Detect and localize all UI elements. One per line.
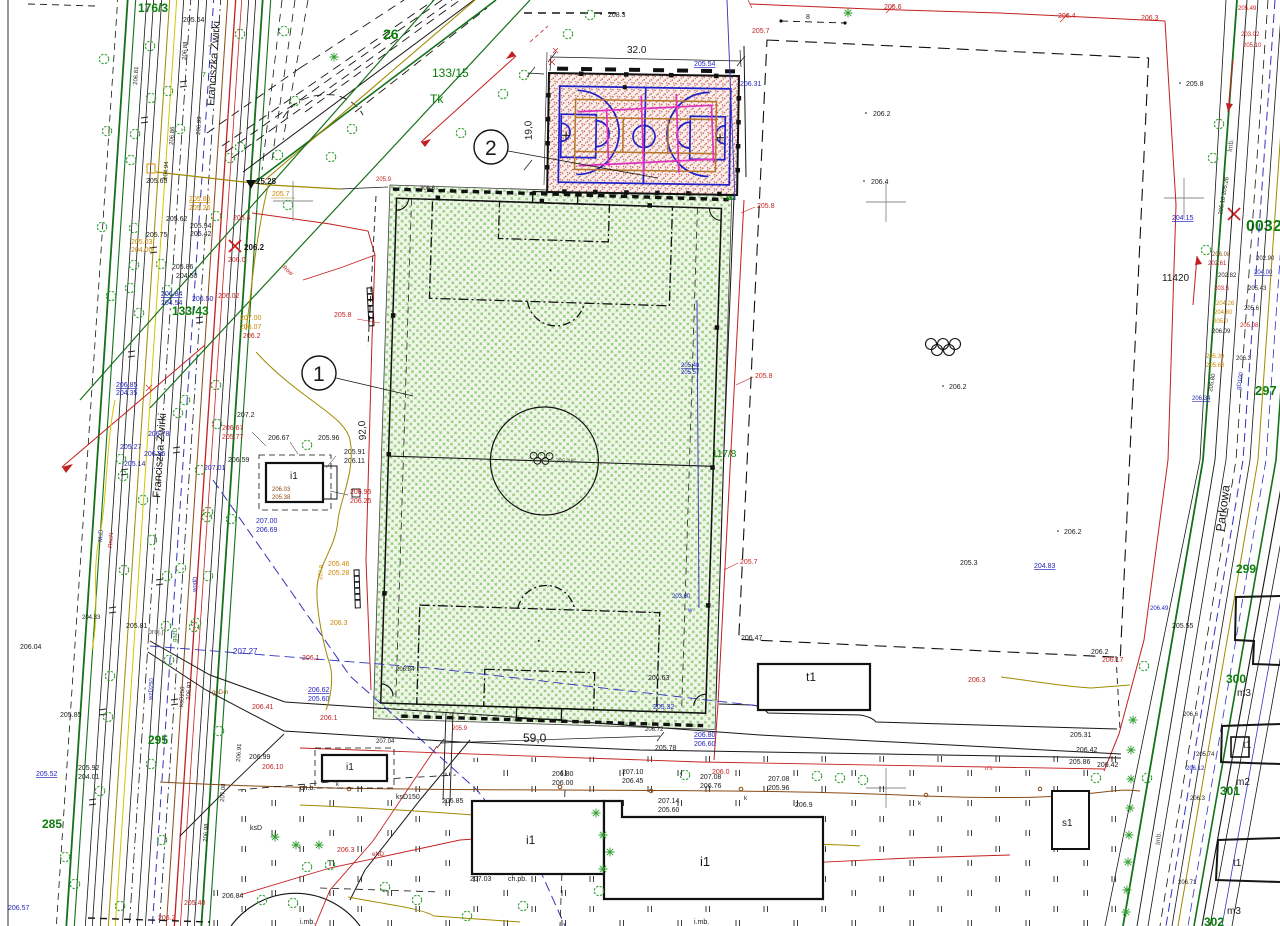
svg-text:205.9: 205.9 — [452, 726, 468, 732]
svg-text:204.15: 204.15 — [1172, 215, 1194, 222]
svg-text:92,0: 92,0 — [357, 420, 369, 440]
svg-text:206.85: 206.85 — [442, 798, 464, 805]
svg-text:205.42: 205.42 — [190, 231, 212, 238]
svg-text:206.31: 206.31 — [740, 81, 762, 88]
svg-text:206.3: 206.3 — [1190, 796, 1206, 802]
svg-text:205.92: 205.92 — [78, 765, 100, 772]
svg-text:206.62: 206.62 — [308, 687, 330, 694]
svg-text:206.2: 206.2 — [1064, 529, 1082, 536]
svg-text:205.52: 205.52 — [36, 771, 58, 778]
svg-text:204.00: 204.00 — [131, 247, 153, 254]
svg-text:205.57: 205.57 — [681, 370, 700, 376]
svg-text:59,0: 59,0 — [523, 731, 547, 745]
svg-text:205.8: 205.8 — [1186, 81, 1204, 88]
svg-text:206.1: 206.1 — [320, 715, 338, 722]
svg-text:206.12: 206.12 — [1186, 766, 1205, 772]
svg-text:207.08: 207.08 — [768, 776, 790, 783]
svg-text:205.4: 205.4 — [233, 215, 251, 222]
svg-text:ksD150: ksD150 — [396, 794, 420, 801]
svg-text:206.4: 206.4 — [1058, 13, 1076, 20]
svg-text:117/8: 117/8 — [712, 449, 737, 460]
svg-text:i1: i1 — [700, 854, 710, 869]
svg-text:206.2: 206.2 — [243, 333, 261, 340]
svg-text:205.03: 205.03 — [131, 239, 153, 246]
svg-text:205.28: 205.28 — [328, 570, 350, 577]
svg-text:207.00: 207.00 — [256, 518, 278, 525]
svg-text:206.2: 206.2 — [1091, 649, 1109, 656]
svg-text:206.00: 206.00 — [552, 780, 574, 787]
svg-text:205.10: 205.10 — [1243, 43, 1262, 49]
svg-text:300: 300 — [1226, 672, 1246, 686]
svg-text:206.85: 206.85 — [116, 382, 138, 389]
svg-text:t1: t1 — [1233, 858, 1242, 869]
svg-text:ch.pb.: ch.pb. — [508, 876, 527, 883]
svg-text:206.69: 206.69 — [256, 527, 278, 534]
svg-text:207.27: 207.27 — [233, 647, 258, 656]
svg-text:205.7: 205.7 — [740, 559, 758, 566]
svg-text:206.11: 206.11 — [344, 458, 365, 465]
svg-text:204.33: 204.33 — [82, 615, 101, 621]
svg-text:205.55: 205.55 — [1172, 623, 1194, 630]
svg-text:7: 7 — [202, 72, 206, 79]
svg-text:207.2: 207.2 — [237, 412, 255, 419]
svg-text:207.01: 207.01 — [204, 465, 226, 472]
svg-text:204.54: 204.54 — [161, 300, 183, 307]
svg-text:205.74: 205.74 — [1196, 752, 1215, 758]
svg-text:i.mb.: i.mb. — [300, 919, 315, 926]
svg-text:206.03: 206.03 — [272, 487, 291, 493]
svg-text:205.91: 205.91 — [344, 449, 366, 456]
svg-text:295: 295 — [148, 733, 168, 747]
svg-text:19,0: 19,0 — [523, 120, 535, 140]
svg-text:206.99: 206.99 — [249, 754, 271, 761]
svg-text:i1: i1 — [526, 833, 536, 847]
svg-text:206.71: 206.71 — [1178, 880, 1197, 886]
svg-text:206.17: 206.17 — [1102, 657, 1124, 664]
svg-text:206.84: 206.84 — [396, 667, 415, 673]
svg-text:205.26: 205.26 — [189, 205, 211, 212]
svg-text:w: w — [687, 608, 693, 614]
svg-text:206.41: 206.41 — [252, 704, 274, 711]
svg-text:205.65: 205.65 — [146, 178, 168, 185]
svg-text:204.35: 204.35 — [116, 390, 138, 397]
svg-text:206.95: 206.95 — [350, 489, 372, 496]
svg-text:299: 299 — [1236, 562, 1256, 576]
svg-text:i1: i1 — [290, 471, 298, 482]
svg-text:205.46: 205.46 — [328, 561, 350, 568]
svg-text:205.8: 205.8 — [334, 312, 352, 319]
svg-text:1: 1 — [313, 363, 325, 386]
svg-text:206.63: 206.63 — [648, 675, 670, 682]
svg-text:202.90: 202.90 — [1256, 256, 1275, 262]
svg-text:206.49: 206.49 — [1150, 606, 1169, 612]
svg-text:206.42: 206.42 — [1097, 762, 1119, 769]
svg-text:206.07: 206.07 — [240, 324, 262, 331]
svg-text:206.45: 206.45 — [622, 778, 644, 785]
svg-text:206.48: 206.48 — [555, 458, 574, 465]
svg-text:207.04: 207.04 — [376, 739, 395, 745]
svg-text:206.96: 206.96 — [144, 451, 166, 458]
svg-text:206.3: 206.3 — [337, 847, 355, 854]
svg-text:2: 2 — [485, 137, 497, 160]
svg-text:205.31: 205.31 — [1070, 732, 1092, 739]
svg-text:205.6: 205.6 — [1244, 306, 1260, 312]
svg-text:RneN: RneN — [108, 532, 115, 548]
svg-text:203.02: 203.02 — [1241, 32, 1260, 38]
svg-text:206.76: 206.76 — [700, 783, 722, 790]
svg-text:t1: t1 — [806, 670, 816, 684]
svg-text:176/3: 176/3 — [138, 1, 168, 15]
svg-text:285: 285 — [42, 817, 62, 831]
svg-text:204.50: 204.50 — [176, 273, 198, 280]
svg-text:207.14: 207.14 — [658, 798, 680, 805]
svg-text:205.32: 205.32 — [653, 704, 675, 711]
svg-text:205.9: 205.9 — [376, 177, 392, 183]
svg-text:206.80: 206.80 — [694, 732, 716, 739]
svg-text:206.80: 206.80 — [552, 771, 574, 778]
svg-text:205.08: 205.08 — [1240, 323, 1259, 329]
svg-text:133/15: 133/15 — [432, 66, 469, 80]
svg-text:25.28: 25.28 — [256, 177, 277, 186]
svg-text:205.62: 205.62 — [166, 216, 188, 223]
svg-text:208.3: 208.3 — [608, 12, 626, 19]
svg-text:205.86: 205.86 — [172, 264, 194, 271]
svg-text:205.14: 205.14 — [124, 461, 146, 468]
svg-text:206.59: 206.59 — [228, 457, 250, 464]
svg-text:207.00: 207.00 — [240, 315, 262, 322]
svg-text:205.60: 205.60 — [308, 696, 330, 703]
svg-text:206.0: 206.0 — [712, 769, 730, 776]
svg-text:205.49: 205.49 — [1238, 6, 1257, 12]
svg-text:203.60: 203.60 — [672, 594, 691, 600]
svg-text:206.2: 206.2 — [873, 111, 891, 118]
svg-text:207.03: 207.03 — [470, 876, 492, 883]
svg-text:205.27: 205.27 — [120, 444, 142, 451]
svg-text:205.85: 205.85 — [60, 712, 82, 719]
svg-text:297: 297 — [1255, 383, 1277, 398]
svg-text:206.25: 206.25 — [350, 498, 372, 505]
svg-text:i.mb.: i.mb. — [694, 919, 709, 926]
svg-text:206.08: 206.08 — [1212, 252, 1231, 258]
svg-text:m3: m3 — [1227, 906, 1241, 917]
svg-text:206.3: 206.3 — [968, 677, 986, 684]
svg-text:gnD-n: gnD-n — [212, 690, 228, 696]
svg-text:206.67: 206.67 — [222, 425, 244, 432]
svg-text:205.3: 205.3 — [960, 560, 978, 567]
svg-text:32.0: 32.0 — [627, 45, 647, 56]
svg-text:206.47: 206.47 — [741, 635, 763, 642]
svg-text:eND: eND — [372, 852, 385, 858]
svg-text:206.60: 206.60 — [694, 741, 716, 748]
svg-text:206.84: 206.84 — [222, 893, 244, 900]
svg-text:204.83: 204.83 — [1034, 563, 1056, 570]
svg-text:206.1: 206.1 — [302, 655, 320, 662]
svg-text:205.77: 205.77 — [222, 434, 244, 441]
svg-text:proj.j: proj.j — [148, 629, 164, 636]
svg-text:lmb.: lmb. — [1155, 831, 1163, 845]
svg-text:206.34: 206.34 — [1192, 396, 1211, 402]
svg-text:206.84: 206.84 — [161, 291, 183, 298]
svg-text:MsD: MsD — [98, 529, 105, 542]
svg-text:204.80: 204.80 — [1214, 310, 1233, 316]
svg-text:302: 302 — [1204, 915, 1224, 926]
svg-text:206.04: 206.04 — [20, 644, 42, 651]
svg-text:wodD: wodD — [192, 576, 199, 593]
svg-text:Tk: Tk — [430, 92, 444, 106]
svg-text:206.6: 206.6 — [420, 186, 436, 192]
svg-text:205.6: 205.6 — [884, 4, 902, 11]
svg-text:205.7: 205.7 — [752, 28, 770, 35]
svg-text:205.0: 205.0 — [1213, 319, 1229, 325]
svg-text:206.2: 206.2 — [949, 384, 967, 391]
svg-text:205.39: 205.39 — [1206, 354, 1225, 360]
svg-text:206.09: 206.09 — [1212, 329, 1231, 335]
svg-text:205.43: 205.43 — [1248, 286, 1267, 292]
svg-text:206.78: 206.78 — [148, 431, 170, 438]
svg-text:205.85: 205.85 — [189, 196, 211, 203]
svg-text:205.96: 205.96 — [318, 435, 340, 442]
svg-text:204.00: 204.00 — [1254, 270, 1273, 276]
svg-text:n's: n's — [985, 766, 992, 772]
svg-text:204.26: 204.26 — [1216, 301, 1235, 307]
svg-text:301: 301 — [1220, 784, 1240, 798]
svg-text:i1: i1 — [346, 762, 354, 773]
svg-text:205.38: 205.38 — [272, 495, 291, 501]
svg-text:11420: 11420 — [1162, 273, 1190, 284]
svg-text:205.96: 205.96 — [768, 785, 790, 792]
svg-text:205.40: 205.40 — [184, 900, 206, 907]
svg-text:s1: s1 — [1062, 818, 1073, 829]
svg-text:204.01: 204.01 — [78, 774, 100, 781]
svg-text:205.54: 205.54 — [694, 61, 716, 68]
svg-text:206.6: 206.6 — [1183, 712, 1199, 718]
svg-text:8: 8 — [806, 14, 810, 21]
svg-text:205.8: 205.8 — [755, 373, 773, 380]
svg-text:ch.b.: ch.b. — [300, 785, 315, 792]
svg-text:206.0: 206.0 — [228, 257, 246, 264]
svg-text:205.7: 205.7 — [272, 191, 290, 198]
svg-text:205.64: 205.64 — [183, 17, 205, 24]
svg-text:m3: m3 — [1237, 688, 1251, 699]
svg-text:202.82: 202.82 — [1218, 273, 1237, 279]
svg-text:205.48: 205.48 — [681, 363, 700, 369]
svg-text:203.5: 203.5 — [1214, 286, 1230, 292]
svg-text:205.86: 205.86 — [1069, 759, 1091, 766]
svg-text:206.3: 206.3 — [330, 620, 348, 627]
svg-text:205.68: 205.68 — [1206, 363, 1225, 369]
svg-text:205.75: 205.75 — [146, 232, 168, 239]
svg-text:202.61: 202.61 — [1208, 261, 1227, 267]
svg-text:206.2: 206.2 — [244, 243, 265, 252]
svg-text:206.67: 206.67 — [268, 435, 290, 442]
svg-text:206.02: 206.02 — [218, 293, 240, 300]
svg-text:206.72: 206.72 — [645, 727, 664, 733]
svg-text:gazD: gazD — [172, 627, 179, 642]
svg-text:206.50: 206.50 — [192, 296, 214, 303]
svg-text:205.78: 205.78 — [655, 745, 677, 752]
svg-text:206.57: 206.57 — [8, 905, 30, 912]
svg-text:26: 26 — [383, 26, 399, 42]
svg-text:207.10: 207.10 — [622, 769, 644, 776]
svg-text:206.3: 206.3 — [1141, 15, 1159, 22]
svg-text:t1: t1 — [1243, 740, 1252, 751]
svg-text:206.10: 206.10 — [262, 764, 284, 771]
svg-text:ksD: ksD — [250, 825, 262, 832]
svg-text:206.9: 206.9 — [795, 802, 813, 809]
svg-text:205.94: 205.94 — [190, 223, 212, 230]
svg-text:205.81: 205.81 — [126, 623, 148, 630]
svg-text:206.42: 206.42 — [1076, 747, 1098, 754]
svg-text:205.60: 205.60 — [658, 807, 680, 814]
svg-text:206.3: 206.3 — [1236, 356, 1252, 362]
svg-text:206.4: 206.4 — [871, 179, 889, 186]
